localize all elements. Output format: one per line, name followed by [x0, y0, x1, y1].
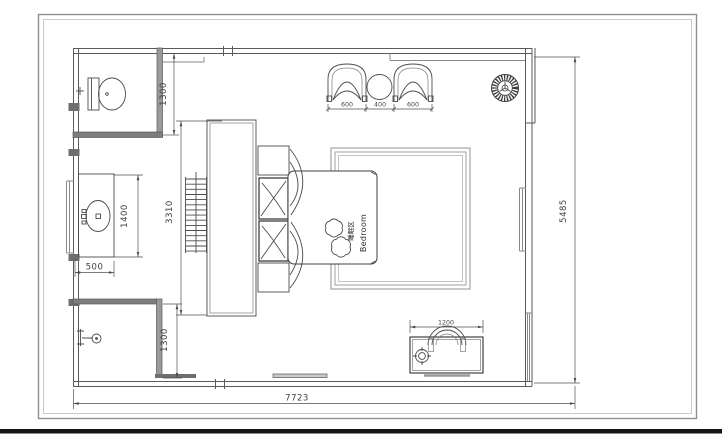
ceiling-speaker-icon	[492, 75, 519, 102]
dim-overall-depth: 5485	[534, 57, 580, 383]
dim-desk-length: 1200	[410, 320, 483, 334]
sink-basin-icon	[86, 201, 110, 232]
room-zone-label-cn: 睡眠区	[347, 221, 355, 241]
armchair-left	[327, 64, 367, 102]
dim-text-desk-length: 1200	[438, 320, 454, 327]
dim-text-closet-length: 3310	[165, 200, 175, 224]
floor-plan-drawing: 睡眠区 Bedroom	[0, 0, 722, 438]
shower-head-icon	[77, 329, 101, 346]
dim-armchairs: 600 400 600	[326, 102, 434, 113]
right-lower-window	[526, 313, 533, 381]
dim-text-vanity-depth: 500	[86, 263, 104, 273]
dim-text-side-table: 400	[374, 102, 386, 109]
dim-vanity-depth: 500	[75, 258, 114, 277]
title-bar-edge	[0, 429, 722, 434]
closet	[186, 120, 257, 316]
dim-text-armchair-left: 600	[341, 102, 353, 109]
dim-overall-width: 7723	[74, 386, 576, 409]
pillows-icon	[259, 178, 288, 261]
toilet-icon	[76, 78, 126, 110]
room-zone-label-en: Bedroom	[359, 214, 368, 252]
left-window	[67, 181, 75, 253]
tv-line	[273, 374, 327, 378]
dim-text-overall-depth: 5485	[559, 199, 569, 223]
dim-text-armchair-right: 600	[407, 102, 419, 109]
armchair-right	[393, 64, 433, 102]
desk	[410, 326, 483, 376]
bed: 睡眠区 Bedroom	[258, 146, 377, 292]
dim-vanity-length: 1400	[114, 175, 143, 257]
shower-room	[73, 299, 196, 378]
wc-room	[73, 48, 163, 138]
side-table-icon	[367, 75, 392, 100]
vanity	[79, 174, 115, 257]
dim-text-shower-depth: 1300	[160, 328, 170, 352]
floor-plan-sheet: 睡眠区 Bedroom	[0, 0, 722, 438]
hanging-rail-icon	[186, 172, 207, 253]
nightstand-bottom	[258, 263, 289, 292]
nightstand-top	[258, 146, 289, 175]
dim-text-wc-depth: 1300	[159, 82, 169, 106]
dim-text-overall-width: 7723	[285, 394, 309, 404]
dim-text-vanity-length: 1400	[120, 204, 130, 228]
dim-closet-length: 3310	[165, 121, 222, 315]
